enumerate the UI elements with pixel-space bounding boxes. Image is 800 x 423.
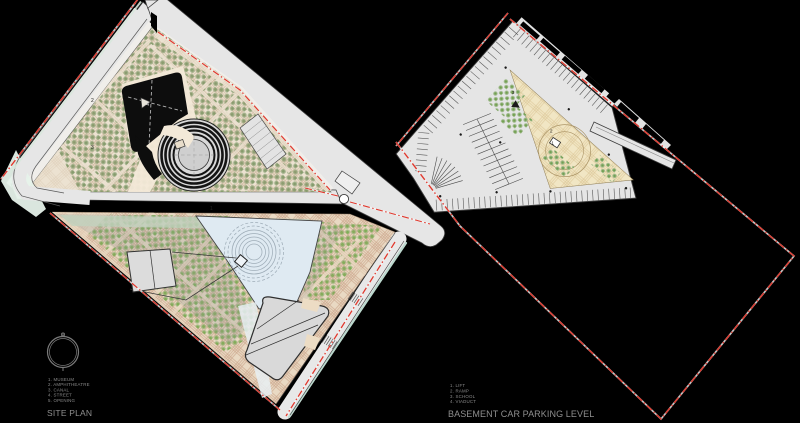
svg-text:3. SCHOOL: 3. SCHOOL <box>450 394 476 399</box>
svg-text:2: 2 <box>91 98 94 104</box>
svg-text:1. LIFT: 1. LIFT <box>450 383 465 388</box>
svg-text:2. RAMP: 2. RAMP <box>450 388 469 393</box>
svg-text:BASEMENT CAR PARKING LEVEL: BASEMENT CAR PARKING LEVEL <box>448 409 594 419</box>
svg-text:3: 3 <box>512 90 515 96</box>
svg-text:1: 1 <box>210 206 213 212</box>
svg-text:1: 1 <box>551 140 554 146</box>
svg-text:3: 3 <box>91 145 94 151</box>
svg-text:4. VIADUCT: 4. VIADUCT <box>450 399 476 404</box>
svg-text:4: 4 <box>146 102 149 108</box>
svg-text:SITE PLAN: SITE PLAN <box>47 408 92 418</box>
svg-text:5. OPENING: 5. OPENING <box>48 398 76 403</box>
svg-text:2: 2 <box>550 129 553 135</box>
